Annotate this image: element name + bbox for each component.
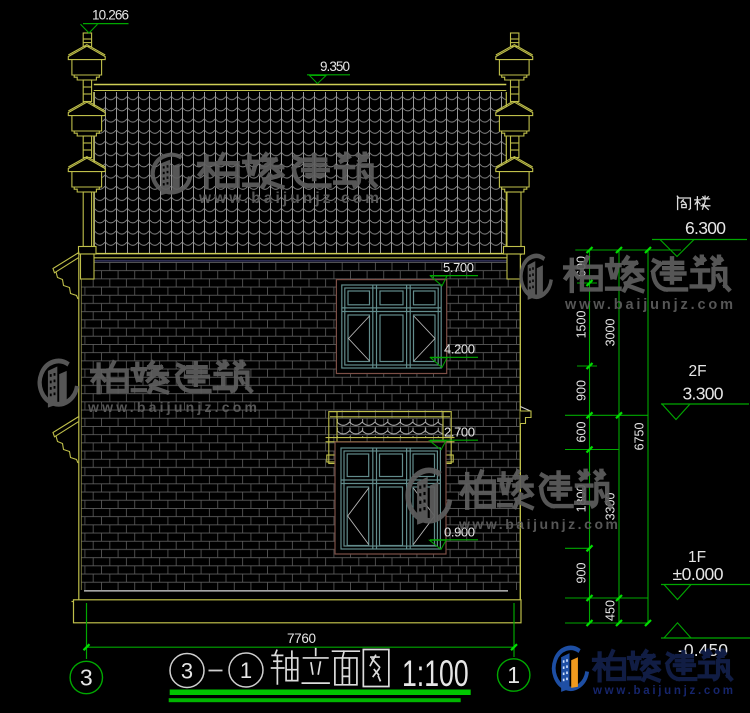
svg-text:1500: 1500	[575, 311, 589, 339]
svg-text:1: 1	[507, 662, 520, 688]
svg-text:3.300: 3.300	[683, 384, 724, 404]
svg-text:6750: 6750	[633, 423, 647, 451]
svg-text:900: 900	[575, 380, 589, 401]
svg-text:9.350: 9.350	[320, 59, 350, 74]
svg-text:3: 3	[181, 659, 193, 684]
svg-text:900: 900	[575, 563, 589, 584]
svg-text:1: 1	[240, 658, 252, 683]
svg-text:1800: 1800	[575, 485, 589, 513]
svg-text:10.266: 10.266	[92, 8, 129, 23]
svg-text:5.700: 5.700	[443, 260, 474, 275]
svg-text:4.200: 4.200	[444, 342, 475, 357]
svg-text:±0.000: ±0.000	[673, 564, 724, 584]
svg-text:2F: 2F	[689, 363, 707, 380]
svg-text:7760: 7760	[287, 631, 316, 646]
svg-text:2.700: 2.700	[444, 425, 475, 440]
svg-text:450: 450	[604, 600, 618, 621]
svg-text:1:100: 1:100	[402, 653, 469, 694]
svg-text:3000: 3000	[604, 319, 618, 347]
svg-text:6.300: 6.300	[685, 218, 726, 238]
svg-text:3: 3	[80, 665, 93, 691]
svg-text:600: 600	[575, 422, 589, 443]
